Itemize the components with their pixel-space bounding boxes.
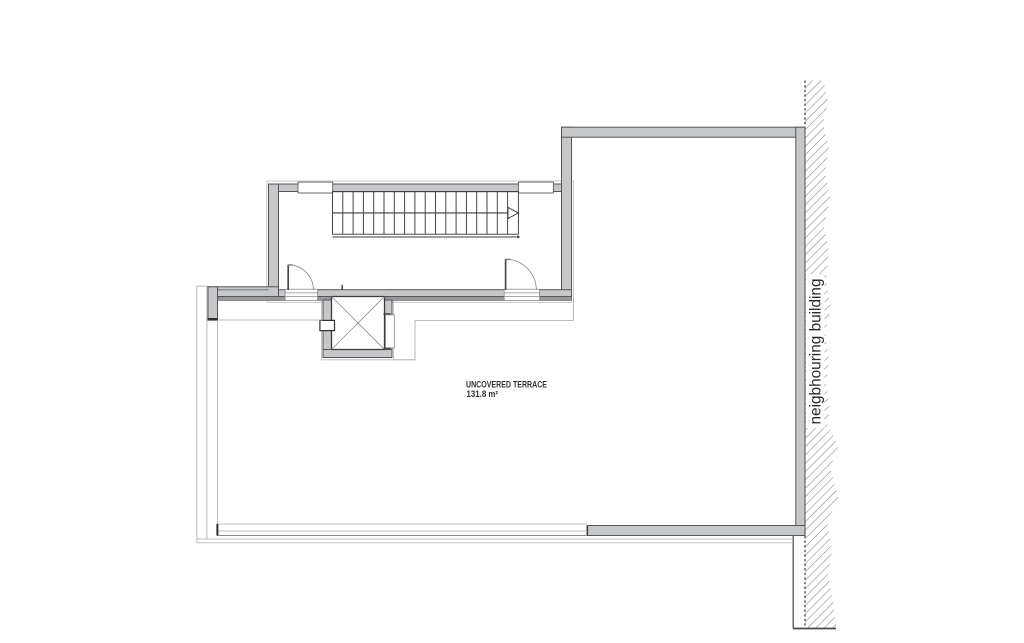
svg-text:UNCOVERED TERRACE: UNCOVERED TERRACE bbox=[466, 379, 547, 389]
svg-text:neigbhouring building: neigbhouring building bbox=[808, 279, 825, 425]
svg-text:131.8 m²: 131.8 m² bbox=[467, 389, 499, 399]
